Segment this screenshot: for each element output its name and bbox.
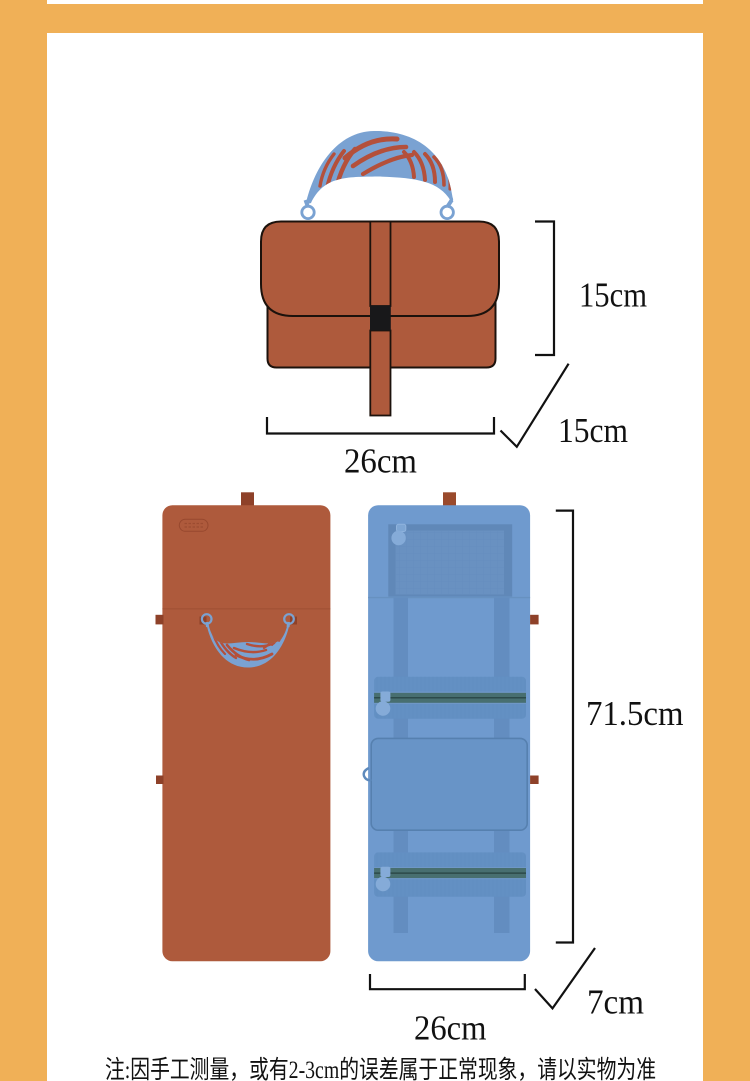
svg-text:注:因手工测量，或有2-3cm的误差属于正常现象，请以实物为: 注:因手工测量，或有2-3cm的误差属于正常现象，请以实物为准 <box>105 1056 656 1081</box>
svg-text:71.5cm: 71.5cm <box>586 695 684 733</box>
svg-text:26cm: 26cm <box>414 1010 487 1048</box>
svg-text:15cm: 15cm <box>579 277 647 315</box>
svg-text:26cm: 26cm <box>344 443 417 481</box>
svg-text:7cm: 7cm <box>587 984 644 1022</box>
svg-text:15cm: 15cm <box>558 412 628 450</box>
